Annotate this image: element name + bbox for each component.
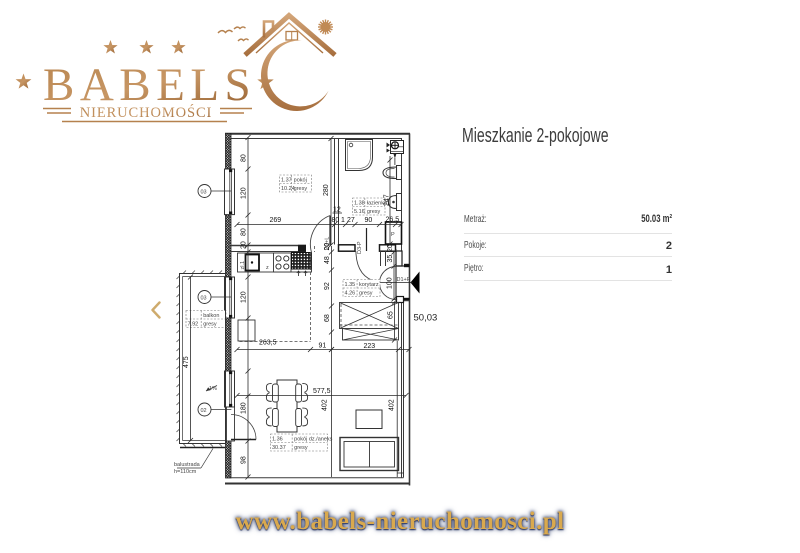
svg-text:68: 68 bbox=[324, 314, 331, 322]
svg-text:269: 269 bbox=[270, 217, 282, 224]
svg-text:gresy: gresy bbox=[294, 445, 308, 451]
svg-text:z: z bbox=[266, 265, 269, 271]
svg-text:402: 402 bbox=[389, 399, 396, 411]
svg-text:gresy: gresy bbox=[359, 291, 373, 297]
svg-text:475: 475 bbox=[183, 356, 190, 368]
svg-text:577,5: 577,5 bbox=[313, 388, 331, 395]
svg-text:1: 1 bbox=[341, 217, 345, 224]
svg-text:pokój: pokój bbox=[294, 178, 307, 184]
svg-text:120: 120 bbox=[241, 187, 248, 199]
svg-text:98: 98 bbox=[241, 456, 248, 464]
svg-text:D3-P: D3-P bbox=[357, 241, 363, 254]
svg-text:5.16: 5.16 bbox=[354, 209, 365, 215]
svg-text:27: 27 bbox=[347, 217, 355, 224]
svg-text:80: 80 bbox=[241, 154, 248, 162]
svg-text:03: 03 bbox=[201, 296, 207, 302]
svg-text:12: 12 bbox=[333, 207, 341, 214]
svg-text:03: 03 bbox=[201, 190, 207, 196]
svg-text:280: 280 bbox=[323, 184, 330, 196]
svg-text:100: 100 bbox=[387, 277, 394, 289]
svg-text:90: 90 bbox=[365, 217, 373, 224]
svg-text:120: 120 bbox=[241, 291, 248, 303]
svg-text:402: 402 bbox=[322, 399, 329, 411]
svg-text:P: P bbox=[391, 232, 395, 238]
svg-text:80: 80 bbox=[241, 228, 248, 236]
svg-text:180: 180 bbox=[241, 402, 248, 414]
svg-text:balustrada: balustrada bbox=[174, 462, 201, 468]
svg-text:263,5: 263,5 bbox=[259, 340, 277, 347]
svg-text:gresy: gresy bbox=[367, 209, 381, 215]
svg-text:D1+P: D1+P bbox=[397, 277, 411, 283]
svg-text:247: 247 bbox=[384, 194, 391, 206]
svg-text:1%: 1% bbox=[209, 386, 217, 392]
svg-text:pokój dz./aneks: pokój dz./aneks bbox=[294, 437, 332, 443]
svg-text:91: 91 bbox=[319, 343, 327, 350]
svg-text:223: 223 bbox=[364, 343, 376, 350]
svg-text:20: 20 bbox=[324, 243, 331, 251]
svg-text:50,03: 50,03 bbox=[414, 313, 438, 324]
svg-text:35: 35 bbox=[387, 255, 394, 263]
svg-text:02: 02 bbox=[201, 408, 207, 414]
svg-text:30.37: 30.37 bbox=[272, 445, 286, 451]
svg-text:NIERUCHOMOŚCI: NIERUCHOMOŚCI bbox=[80, 104, 213, 121]
svg-text:1.38: 1.38 bbox=[354, 201, 365, 207]
svg-text:92: 92 bbox=[324, 282, 331, 290]
svg-text:20: 20 bbox=[241, 241, 248, 249]
svg-text:1.37: 1.37 bbox=[281, 178, 292, 184]
svg-text:1.35: 1.35 bbox=[345, 282, 356, 288]
svg-text:h=110cm: h=110cm bbox=[174, 469, 197, 475]
svg-text:balkon: balkon bbox=[203, 313, 219, 319]
svg-text:65: 65 bbox=[388, 311, 395, 319]
svg-text:korytarz: korytarz bbox=[359, 282, 379, 288]
svg-text:1.36: 1.36 bbox=[272, 437, 283, 443]
svg-text:20: 20 bbox=[387, 244, 394, 252]
svg-text:48: 48 bbox=[324, 256, 331, 264]
svg-text:26.5: 26.5 bbox=[386, 217, 400, 224]
svg-text:4.26: 4.26 bbox=[345, 291, 356, 297]
svg-text:gresy: gresy bbox=[294, 186, 308, 192]
svg-text:zl.1: zl.1 bbox=[240, 261, 246, 270]
svg-text:BABELS: BABELS bbox=[43, 59, 256, 111]
svg-text:7.92: 7.92 bbox=[188, 322, 199, 328]
svg-text:80: 80 bbox=[332, 217, 340, 224]
svg-text:gresy: gresy bbox=[203, 322, 217, 328]
